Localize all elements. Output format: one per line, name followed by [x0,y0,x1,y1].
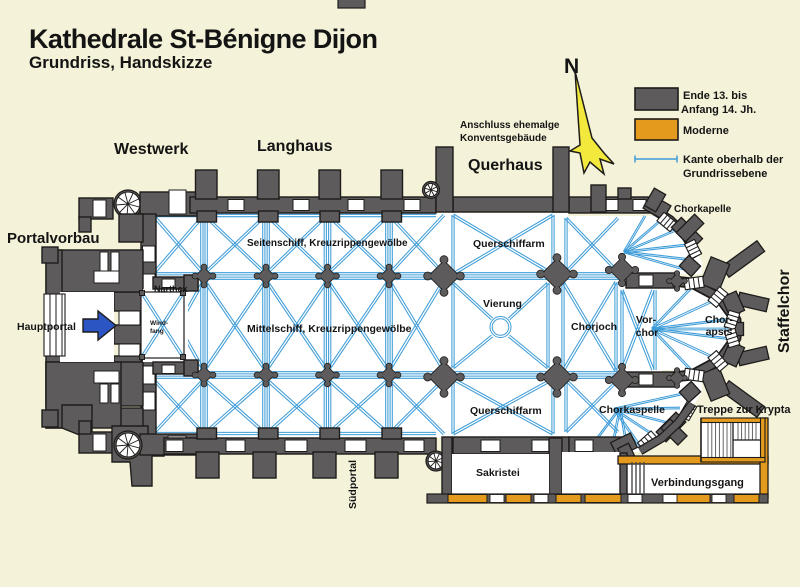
svg-text:Moderne: Moderne [683,125,729,137]
svg-text:Chorkapelle: Chorkapelle [674,204,732,215]
svg-text:Querschiffarm: Querschiffarm [473,238,545,250]
svg-text:Wind-: Wind- [150,320,168,327]
svg-text:chor: chor [636,327,659,339]
svg-text:Ende 13. bis: Ende 13. bis [683,90,747,102]
svg-text:Kathedrale St-Bénigne Dijon: Kathedrale St-Bénigne Dijon [29,24,377,54]
svg-text:fang: fang [150,328,164,335]
svg-text:apsis: apsis [706,326,733,338]
svg-text:Portalvorbau: Portalvorbau [7,230,100,247]
svg-text:Verbindungsgang: Verbindungsgang [651,477,744,489]
svg-text:Kante oberhalb der: Kante oberhalb der [683,154,784,166]
svg-text:Konventsgebäude: Konventsgebäude [460,133,547,144]
svg-text:Westwerk: Westwerk [114,141,189,158]
svg-text:Sakristei: Sakristei [476,467,520,479]
svg-text:Anschluss ehemalge: Anschluss ehemalge [460,120,560,131]
svg-text:Vor-: Vor- [636,314,657,326]
svg-text:Chorkaspelle: Chorkaspelle [599,404,665,416]
svg-text:Chor-: Chor- [705,314,733,326]
svg-text:Narthex: Narthex [154,284,188,294]
svg-text:Langhaus: Langhaus [257,138,333,155]
svg-text:Anfang 14. Jh.: Anfang 14. Jh. [681,104,756,116]
svg-text:Hauptportal: Hauptportal [17,321,76,333]
svg-text:Treppe zur Krypta: Treppe zur Krypta [697,404,791,416]
svg-text:Südportal: Südportal [347,460,359,509]
svg-text:Seitenschiff, Kreuzrippengewöl: Seitenschiff, Kreuzrippengewölbe [247,238,408,249]
svg-text:Mittelschiff, Kreuzrippengewö: Mittelschiff, Kreuzrippengewölbe [247,323,412,335]
svg-text:N: N [564,55,579,78]
svg-text:Vierung: Vierung [483,298,522,310]
svg-text:Chorjoch: Chorjoch [571,321,617,333]
svg-text:Querschiffarm: Querschiffarm [470,405,542,417]
svg-text:Querhaus: Querhaus [468,157,543,174]
svg-text:Grundriss, Handskizze: Grundriss, Handskizze [29,53,212,72]
svg-text:Staffelchor: Staffelchor [776,269,793,353]
svg-text:Grundrissebene: Grundrissebene [683,168,767,180]
